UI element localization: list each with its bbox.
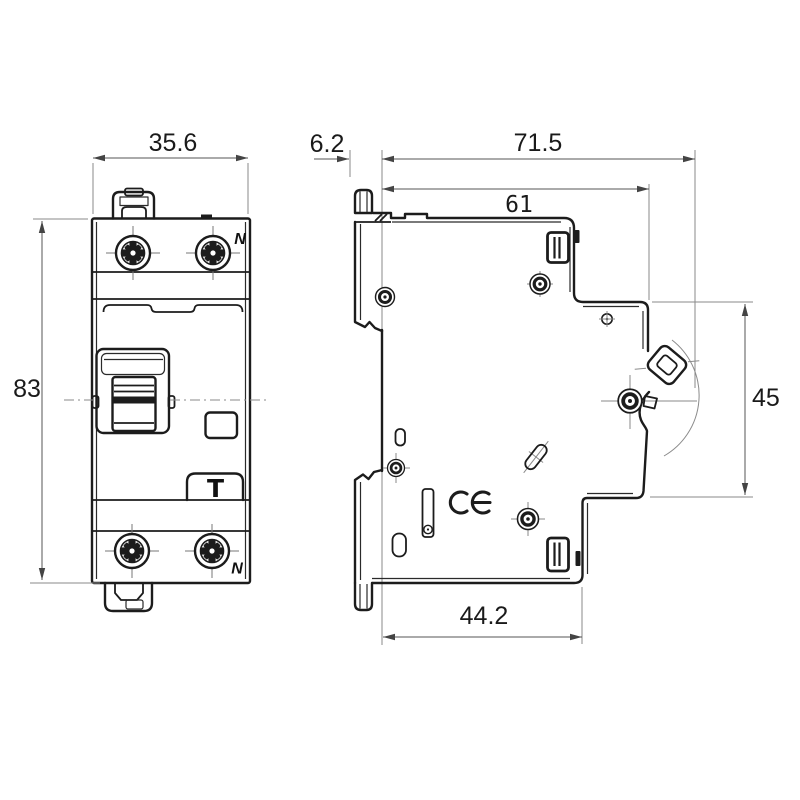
rivet-icon [388,460,405,477]
rivet-icon [618,389,642,413]
front-view: T N N [64,189,270,612]
dim-upper-depth-label: 61 [505,192,533,218]
rivet-crosshair [601,375,697,429]
din-clip-top-icon [113,189,154,219]
side-back-lower [355,470,382,583]
toggle-detent [644,396,658,409]
ce-mark-icon [450,492,490,513]
latch-slot-mark-top [575,230,580,243]
dim-front-width-label: 35.6 [149,129,198,157]
neutral-label-top: N [234,231,246,248]
terminal-screw-icon [105,524,159,578]
rivet-icon [530,274,550,294]
technical-drawing-canvas: T N N [0,0,800,800]
molding-slot-icon [396,429,406,446]
toggle-switch-side-icon [635,332,700,397]
dim-total-depth-label: 71.5 [514,129,563,157]
terminal-slot-top-icon [548,233,569,263]
neutral-label-bottom: N [231,561,243,578]
front-label-plate [104,305,243,312]
molding-oval-icon [393,534,407,557]
front-top-edge-mark [201,215,212,219]
dim-lower-depth-label: 44.2 [460,602,509,630]
test-button-label: T [207,474,224,503]
rating-window [206,413,238,439]
back-tab-top-icon [355,190,372,213]
side-view [355,150,699,645]
terminal-slot-bottom-icon [548,538,569,571]
side-back-upper [355,222,382,331]
side-outline-bottom [373,392,650,583]
dim-front-face-height-label: 45 [752,384,780,412]
test-button: T [187,474,243,504]
latch-slot-mark-bottom [576,551,581,566]
din-clip-bottom-icon [105,583,152,611]
dim-rail-offset-label: 6.2 [310,130,345,158]
breaker-dimension-drawing: T N N [0,0,800,800]
back-tab-bottom-icon [355,583,372,610]
rivet-icon [376,288,395,307]
vent-slot-icon [423,489,434,537]
toggle-switch-front-icon [93,349,175,433]
dim-front-height-label: 83 [13,375,41,403]
pin-circle-icon [599,311,615,327]
angled-capsule-icon [517,436,556,479]
side-outline-top [373,213,648,351]
rivet-icon [518,509,539,530]
